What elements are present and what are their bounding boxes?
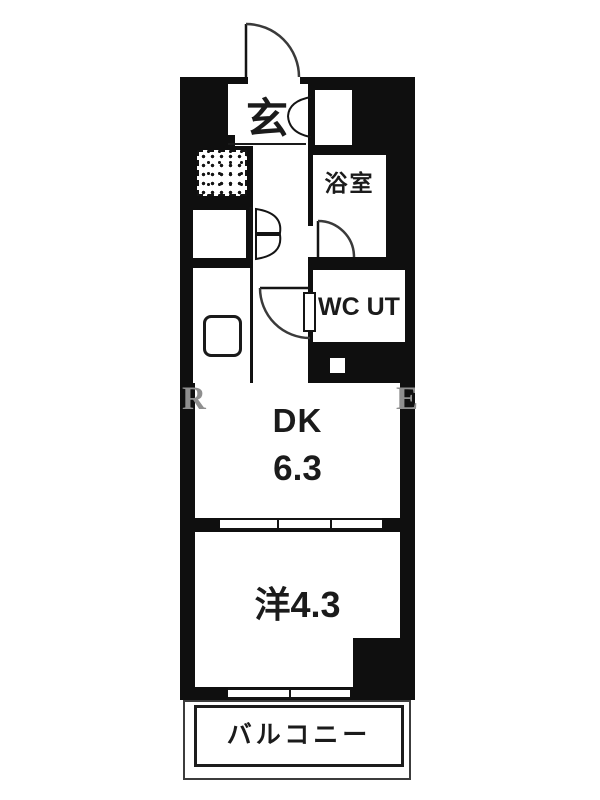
entry-door-arc	[246, 24, 299, 77]
watermark-letter-right: E	[396, 381, 418, 418]
wc-door-arc	[260, 288, 310, 338]
bathroom-label: 浴室	[313, 166, 386, 196]
balcony-label: バルコニー	[194, 716, 404, 750]
western-room-label: 洋4.3	[195, 580, 400, 624]
floor-plan: 玄 浴室 WC UT DK 6.3 洋4.3 バルコニー R E	[0, 0, 600, 800]
watermark-letter-left: R	[182, 381, 206, 418]
bifold-door-leaf-bottom	[256, 235, 280, 259]
bathroom-door-arc	[318, 221, 354, 257]
genkan-label: 玄	[228, 86, 306, 144]
dk-label: DK	[195, 402, 400, 440]
dk-size-label: 6.3	[195, 448, 400, 490]
wc-ut-label: WC UT	[313, 290, 405, 324]
bifold-door-leaf-top	[256, 209, 280, 233]
